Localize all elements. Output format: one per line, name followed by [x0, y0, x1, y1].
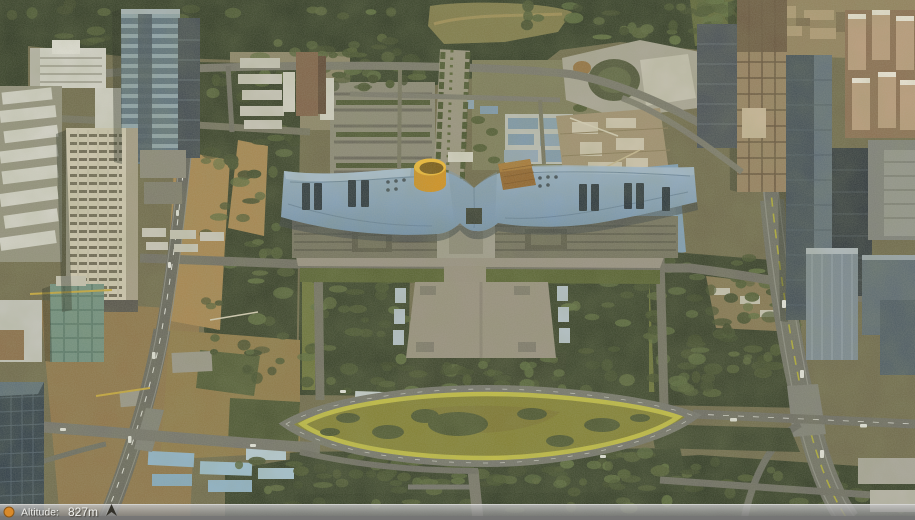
svg-text:827m: 827m: [68, 505, 98, 519]
svg-text:Altitude:: Altitude:: [21, 507, 59, 519]
